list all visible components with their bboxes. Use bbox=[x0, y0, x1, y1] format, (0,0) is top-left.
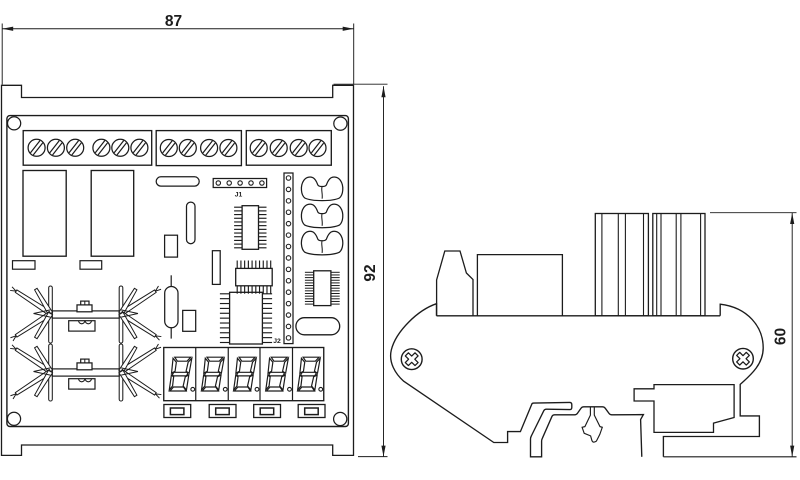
svg-text:J1: J1 bbox=[235, 192, 243, 199]
svg-text:87: 87 bbox=[165, 13, 182, 30]
svg-text:J2: J2 bbox=[273, 338, 281, 345]
svg-text:60: 60 bbox=[773, 328, 790, 345]
svg-text:92: 92 bbox=[362, 264, 379, 281]
